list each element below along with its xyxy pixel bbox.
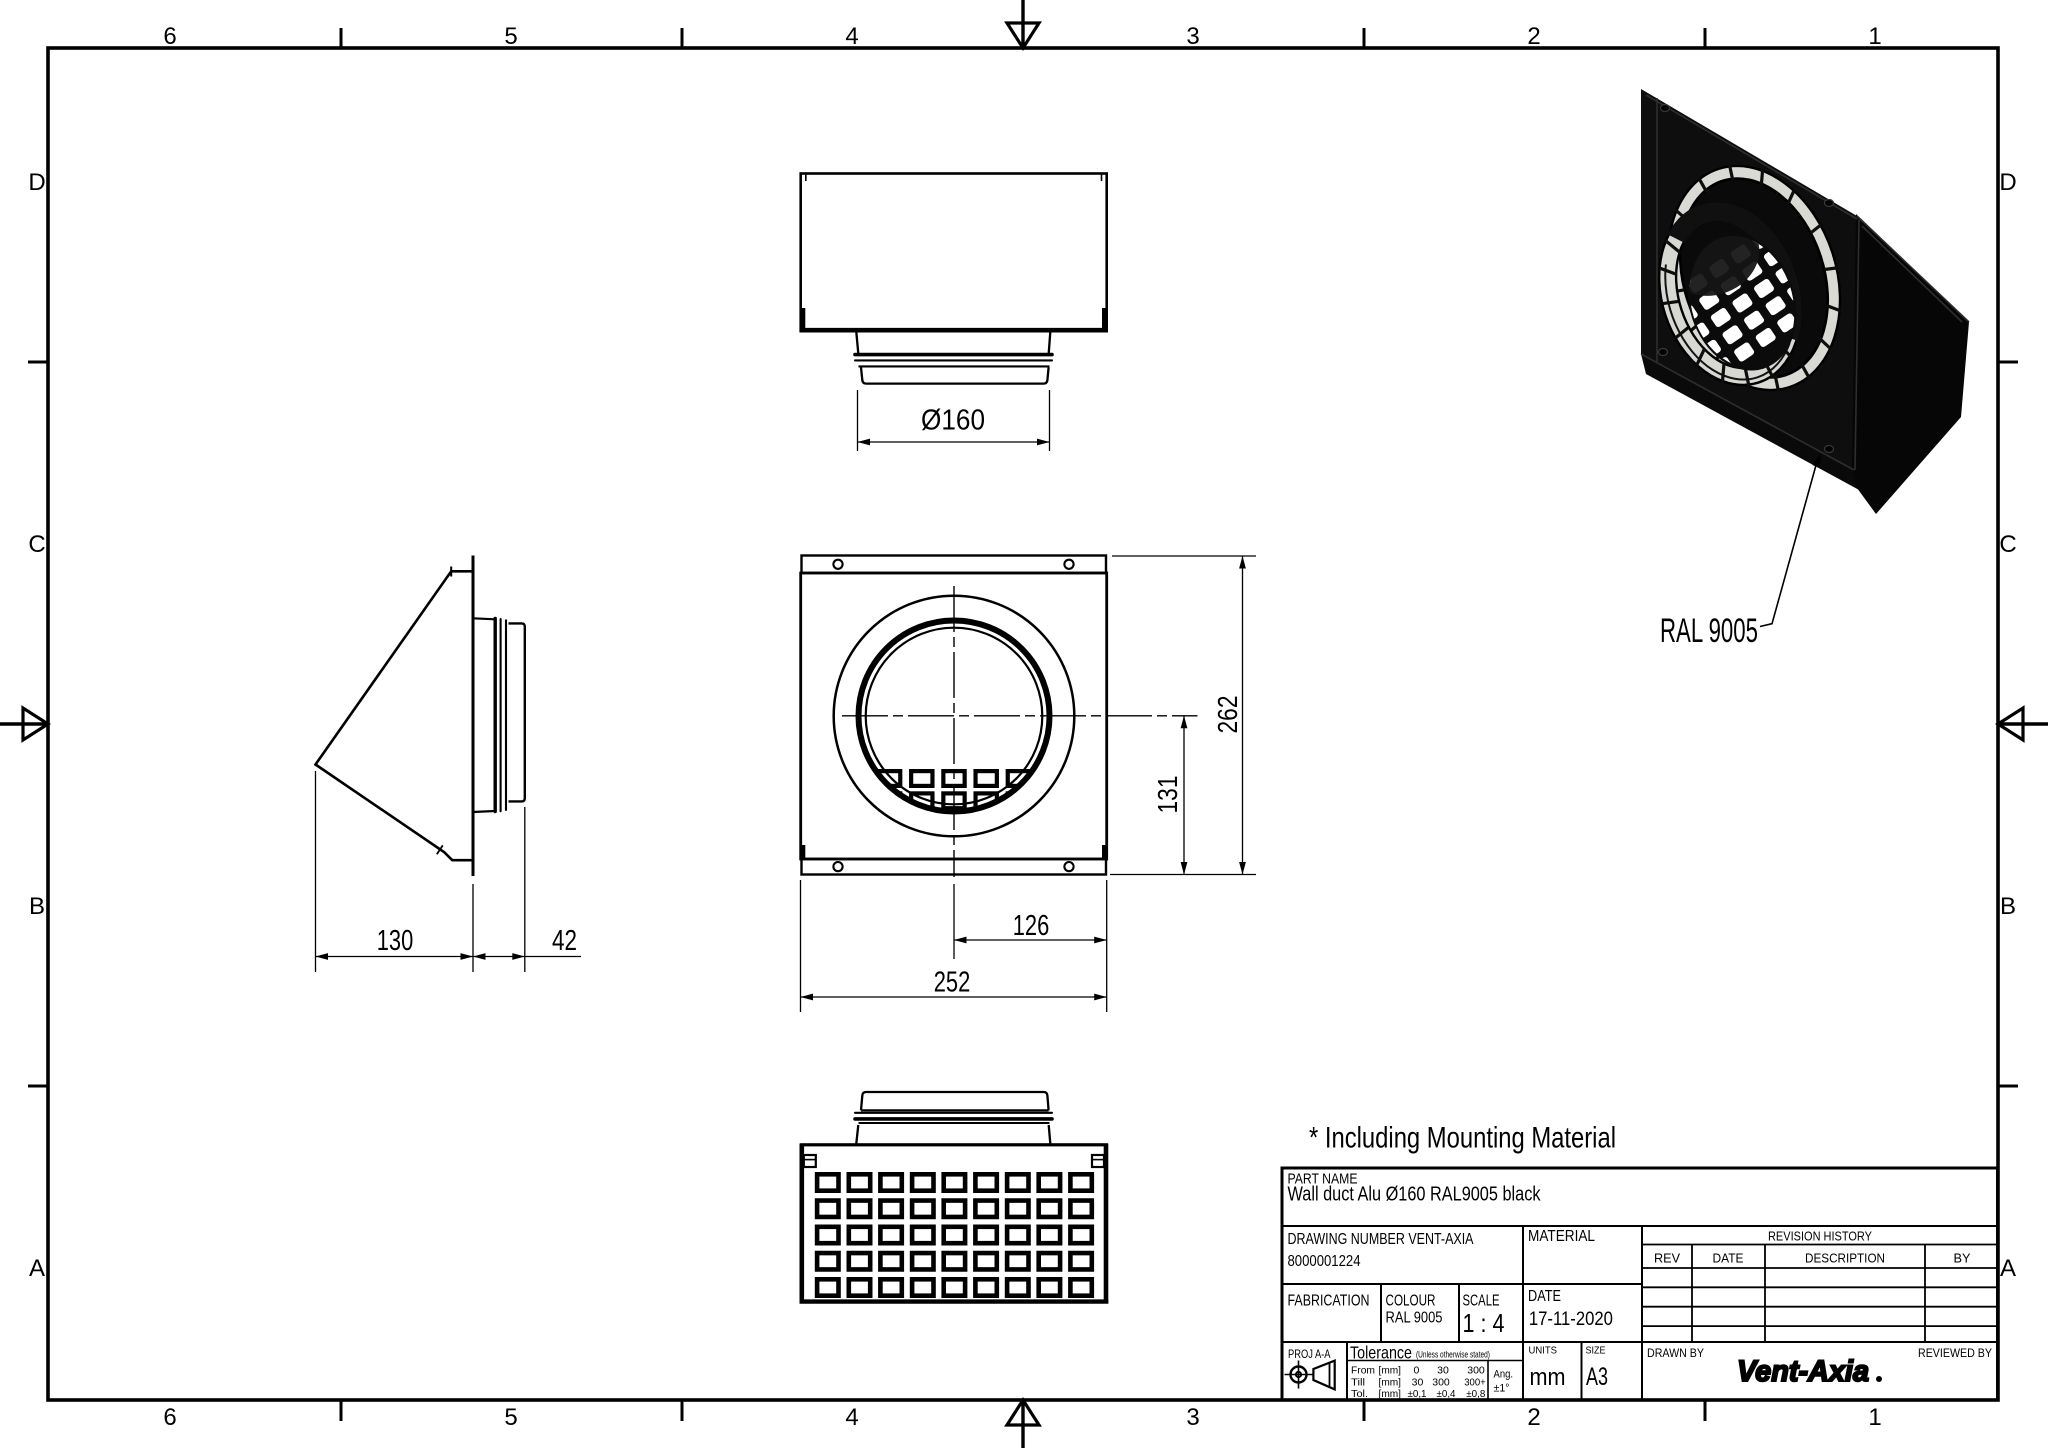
svg-text:B: B <box>29 893 45 920</box>
svg-text:±0,1: ±0,1 <box>1408 1388 1427 1400</box>
svg-text:Ø160: Ø160 <box>921 405 985 437</box>
svg-text:126: 126 <box>1013 910 1050 942</box>
svg-text:4: 4 <box>845 23 858 50</box>
svg-text:A: A <box>2000 1255 2016 1282</box>
svg-text:3: 3 <box>1186 23 1199 50</box>
svg-text:2: 2 <box>1527 1404 1540 1431</box>
svg-text:A: A <box>29 1255 45 1282</box>
svg-text:SCALE: SCALE <box>1463 1293 1500 1310</box>
svg-text:DRAWN BY: DRAWN BY <box>1647 1346 1704 1360</box>
svg-text:* Including Mounting Material: * Including Mounting Material <box>1309 1122 1616 1155</box>
svg-text:±1°: ±1° <box>1494 1383 1510 1395</box>
svg-text:5: 5 <box>504 23 517 50</box>
svg-text:DESCRIPTION: DESCRIPTION <box>1805 1251 1885 1266</box>
svg-text:mm: mm <box>1530 1364 1566 1391</box>
svg-text:6: 6 <box>163 1404 176 1431</box>
svg-text:Tolerance: Tolerance <box>1350 1343 1412 1363</box>
svg-text:C: C <box>28 531 45 558</box>
svg-text:30: 30 <box>1412 1377 1424 1389</box>
svg-text:D: D <box>28 169 45 196</box>
svg-text:SIZE: SIZE <box>1586 1345 1606 1357</box>
svg-text:300: 300 <box>1467 1365 1485 1377</box>
svg-text:PROJ A-A: PROJ A-A <box>1288 1347 1331 1361</box>
svg-text:DATE: DATE <box>1528 1288 1561 1305</box>
svg-text:RAL 9005: RAL 9005 <box>1386 1310 1443 1327</box>
svg-text:REVISION HISTORY: REVISION HISTORY <box>1768 1229 1872 1244</box>
svg-text:REVIEWED BY: REVIEWED BY <box>1918 1346 1992 1360</box>
svg-text:0: 0 <box>1413 1365 1419 1377</box>
svg-text:Tol.: Tol. <box>1351 1388 1368 1400</box>
svg-text:8000001224: 8000001224 <box>1288 1253 1361 1270</box>
svg-text:±0,8: ±0,8 <box>1466 1388 1485 1400</box>
svg-text:From: From <box>1351 1365 1375 1377</box>
svg-text:17-11-2020: 17-11-2020 <box>1529 1308 1613 1330</box>
svg-text:BY: BY <box>1954 1251 1971 1266</box>
svg-text:FABRICATION: FABRICATION <box>1288 1293 1370 1310</box>
svg-text:252: 252 <box>934 967 971 999</box>
svg-text:MATERIAL: MATERIAL <box>1528 1228 1595 1245</box>
svg-text:[mm]: [mm] <box>1379 1365 1402 1377</box>
svg-text:[mm]: [mm] <box>1379 1377 1402 1389</box>
svg-text:UNITS: UNITS <box>1529 1345 1558 1357</box>
svg-text:262: 262 <box>1212 696 1243 734</box>
svg-text:2: 2 <box>1527 23 1540 50</box>
svg-text:B: B <box>2000 893 2016 920</box>
svg-text:Ang.: Ang. <box>1494 1369 1514 1381</box>
svg-text:COLOUR: COLOUR <box>1386 1293 1436 1310</box>
svg-text:Till: Till <box>1351 1377 1365 1389</box>
svg-text:300: 300 <box>1432 1377 1450 1389</box>
svg-text:DATE: DATE <box>1713 1251 1744 1266</box>
svg-text:A3: A3 <box>1586 1363 1608 1391</box>
svg-text:C: C <box>1999 531 2016 558</box>
svg-text:1: 1 <box>1868 23 1881 50</box>
svg-text:REV: REV <box>1654 1251 1680 1266</box>
svg-text:(Unless otherwise stated): (Unless otherwise stated) <box>1416 1350 1490 1360</box>
svg-text:300+: 300+ <box>1464 1377 1486 1389</box>
svg-text:±0,4: ±0,4 <box>1437 1388 1456 1400</box>
svg-text:130: 130 <box>377 925 414 957</box>
svg-text:30: 30 <box>1437 1365 1449 1377</box>
svg-text:[mm]: [mm] <box>1379 1388 1402 1400</box>
svg-text:42: 42 <box>552 925 577 957</box>
svg-text:3: 3 <box>1186 1404 1199 1431</box>
svg-text:D: D <box>1999 169 2016 196</box>
svg-text:RAL 9005: RAL 9005 <box>1660 612 1758 650</box>
svg-text:6: 6 <box>163 23 176 50</box>
svg-text:Wall duct Alu Ø160 RAL9005 bla: Wall duct Alu Ø160 RAL9005 black <box>1288 1184 1542 1206</box>
svg-text:1: 1 <box>1868 1404 1881 1431</box>
svg-text:1 : 4: 1 : 4 <box>1463 1308 1505 1338</box>
svg-text:DRAWING NUMBER VENT-AXIA: DRAWING NUMBER VENT-AXIA <box>1288 1231 1475 1248</box>
svg-text:131: 131 <box>1152 776 1183 814</box>
svg-text:5: 5 <box>504 1404 517 1431</box>
svg-text:4: 4 <box>845 1404 858 1431</box>
svg-text:Vent-Axia: Vent-Axia <box>1737 1355 1869 1388</box>
